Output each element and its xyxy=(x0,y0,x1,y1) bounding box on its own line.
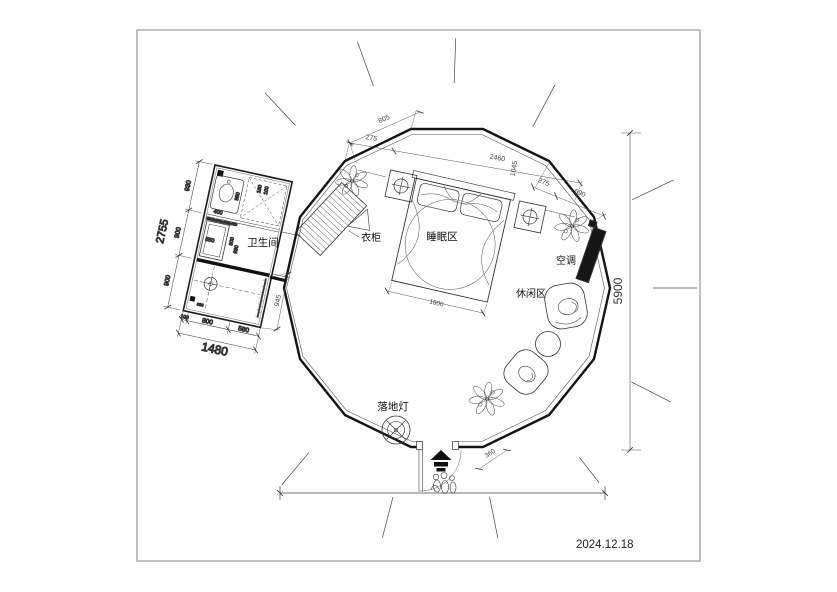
dim-bath-900i: 900 xyxy=(228,236,236,246)
plants xyxy=(335,165,589,416)
ray-line xyxy=(533,85,555,126)
ray-line xyxy=(265,93,296,126)
dim-tick xyxy=(578,180,583,187)
label-bathroom: 卫生间 xyxy=(247,236,279,249)
nightstand-right xyxy=(514,201,546,233)
thick-partition xyxy=(196,258,269,277)
sink xyxy=(218,183,236,204)
wardrobe-stripe xyxy=(336,189,361,212)
label-sleeping: 睡眠区 xyxy=(426,230,458,243)
dim-top-seg: 275 xyxy=(365,134,378,143)
dim-bath-550: 550 xyxy=(205,237,215,245)
ground-line xyxy=(280,486,605,500)
door-jamb-right xyxy=(453,442,459,450)
glass-partition xyxy=(257,278,266,317)
dim-right-seg: 275 xyxy=(537,177,551,188)
dim-tick xyxy=(225,326,232,333)
wardrobe-stripe xyxy=(298,229,323,252)
door-jamb-left xyxy=(417,442,423,450)
dim-bed-width: 1800 xyxy=(429,299,445,309)
dim-tick xyxy=(602,212,605,219)
entrance-arrow-icon xyxy=(431,450,452,472)
dim-tick xyxy=(255,333,262,340)
furniture xyxy=(295,165,608,444)
dim-tick xyxy=(175,330,182,337)
dimensions xyxy=(262,111,641,496)
wardrobe-leader xyxy=(349,231,359,237)
radial-rays xyxy=(265,38,697,538)
wardrobe-stripe xyxy=(301,226,326,249)
wardrobe-stripe xyxy=(323,202,348,225)
floor-plan-page: 930 900 900 2755 100 800 580 1480 400 35… xyxy=(0,0,837,592)
dim-tick xyxy=(196,158,203,165)
wardrobe-stripe xyxy=(333,192,358,215)
label-wardrobe: 衣柜 xyxy=(361,231,381,244)
ray-line xyxy=(579,457,599,482)
entrance xyxy=(417,442,462,494)
dim-top-total: 2460 xyxy=(489,154,506,164)
dim-tick xyxy=(176,252,183,259)
dim-overall-height: 5900 xyxy=(611,277,625,304)
entrance-figures xyxy=(431,473,456,494)
ray-line xyxy=(489,497,497,538)
dim-top-vert: 1045 xyxy=(510,160,520,177)
dim-tick xyxy=(252,347,259,354)
dim-tick xyxy=(164,304,171,311)
ray-line xyxy=(357,42,373,86)
ray-line xyxy=(282,453,309,485)
dim-bath-total-h: 2755 xyxy=(154,218,171,244)
bathroom-block: 930 900 900 2755 100 800 580 1480 400 35… xyxy=(133,153,295,365)
label-floor-lamp: 落地灯 xyxy=(377,400,409,413)
dim-bath-h1: 930 xyxy=(184,179,193,191)
dim-bath-w3: 580 xyxy=(237,325,249,334)
nightstand-left xyxy=(385,170,417,202)
lounge-chair-top xyxy=(542,281,589,331)
floor-plan-svg: 930 900 900 2755 100 800 580 1480 400 35… xyxy=(0,0,837,592)
yurt-walls xyxy=(284,129,610,447)
dim-tick xyxy=(185,207,192,214)
inner-wall xyxy=(287,135,605,442)
dim-bath-w2: 800 xyxy=(201,317,213,326)
dim-entrance: 360 xyxy=(484,448,497,460)
dim-bath-total-w: 1480 xyxy=(200,339,229,358)
dim-tick xyxy=(503,449,511,451)
wardrobe-stripe xyxy=(304,223,329,246)
dim-tick xyxy=(348,140,353,147)
dim-tick xyxy=(531,183,534,190)
dim-bath-930i: 930 xyxy=(233,245,241,255)
outer-wall xyxy=(284,129,610,447)
dim-bath-h3: 900 xyxy=(163,274,172,286)
bed-canopy-circle xyxy=(396,191,504,299)
dim-bath-h2: 900 xyxy=(174,226,183,238)
wardrobe-stripe xyxy=(329,196,354,219)
dim-tick xyxy=(274,327,281,331)
label-ac: 空调 xyxy=(556,254,576,267)
ray-line xyxy=(454,38,456,83)
ray-line xyxy=(382,497,393,538)
plant-icon xyxy=(554,209,589,242)
wardrobe-stripe xyxy=(320,206,345,229)
wardrobe-stripe xyxy=(308,219,333,242)
lounge-chair-bottom xyxy=(499,344,554,399)
wardrobe-stripe xyxy=(314,213,339,236)
label-leisure: 休闲区 xyxy=(516,287,546,300)
date-stamp: 2024.12.18 xyxy=(576,539,634,551)
dim-bath-100: 100 xyxy=(263,186,271,196)
dim-top-edge: 805 xyxy=(378,114,392,125)
ray-line xyxy=(632,180,674,200)
wardrobe-stripe xyxy=(326,199,351,222)
round-table xyxy=(536,332,561,357)
ray-line xyxy=(631,382,670,402)
wardrobe-stripe xyxy=(317,209,342,232)
dim-tick xyxy=(475,468,483,470)
dim-bath-960: 960 xyxy=(196,301,204,307)
wardrobe-stripe xyxy=(311,216,336,239)
wardrobe-unit xyxy=(295,183,380,269)
plant-icon xyxy=(469,382,506,417)
